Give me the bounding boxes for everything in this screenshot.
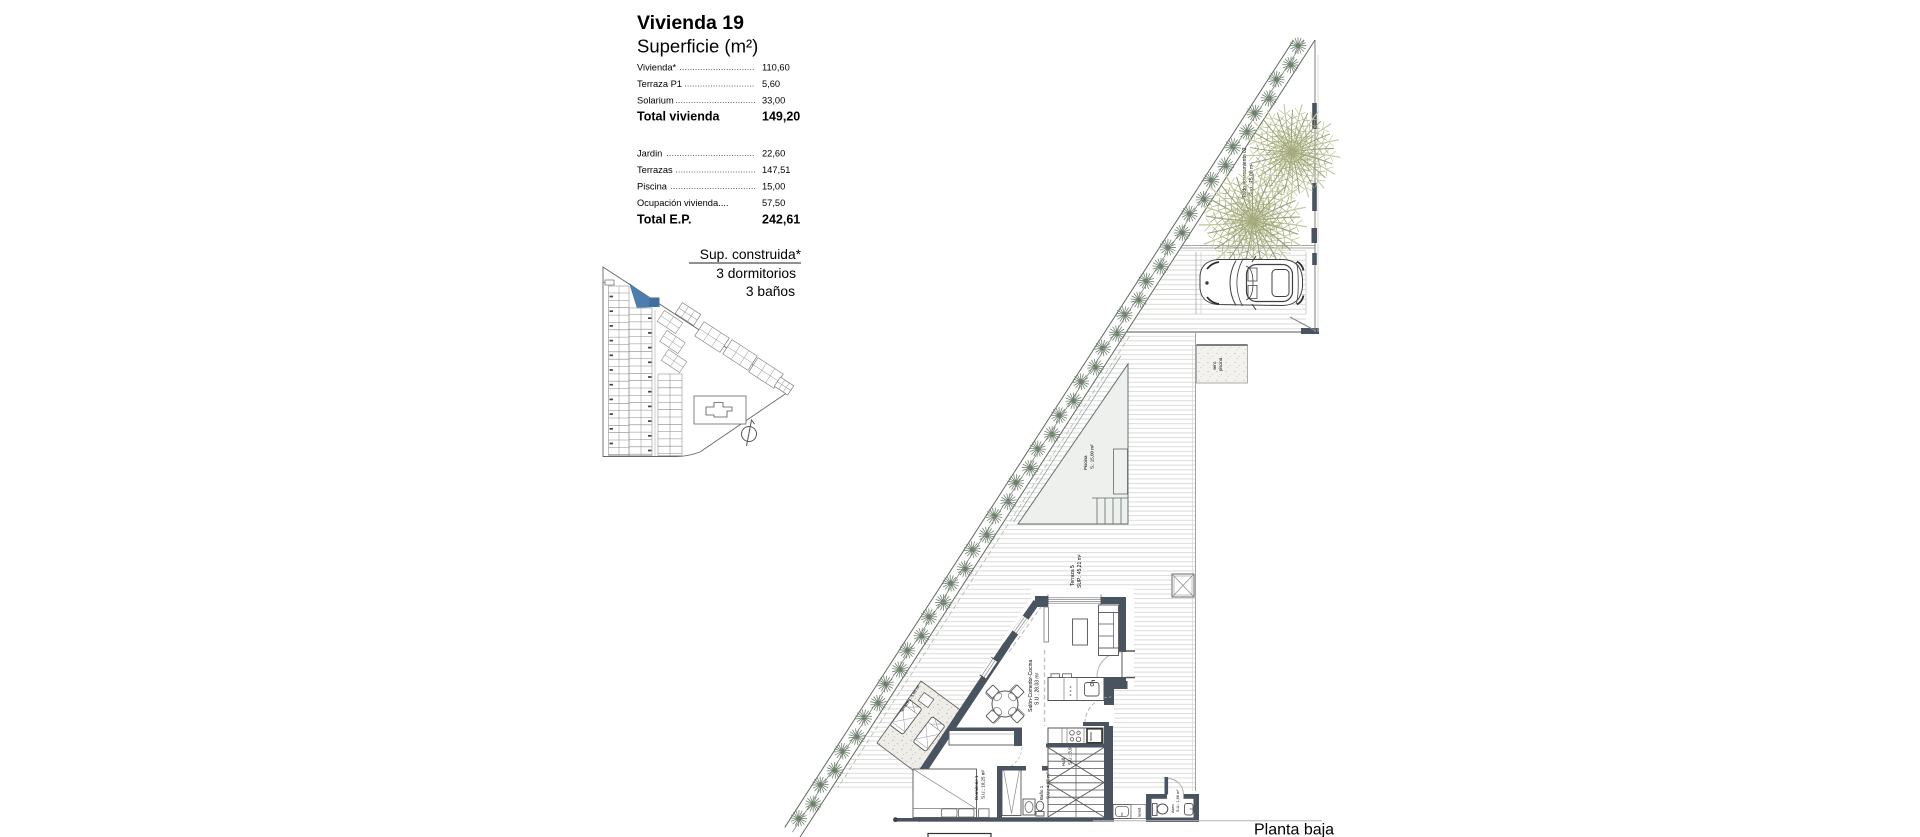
svg-text:Vivienda 19: Vivienda 19 <box>637 12 744 34</box>
svg-text:piscina: piscina <box>1218 357 1223 371</box>
svg-text:Terraza 5: Terraza 5 <box>1070 565 1076 586</box>
svg-text:S.: 15,00 m²: S.: 15,00 m² <box>1090 444 1095 469</box>
svg-text:5,60: 5,60 <box>762 79 780 89</box>
svg-text:Dormitorio 1: Dormitorio 1 <box>974 775 979 800</box>
svg-text:SUP.: 45,21 m²: SUP.: 45,21 m² <box>1077 554 1083 588</box>
svg-text:S.U.: 1,96 m²: S.U.: 1,96 m² <box>1176 789 1180 812</box>
svg-text:3 baños: 3 baños <box>746 284 795 299</box>
svg-text:Ocupación vivienda....: Ocupación vivienda.... <box>637 198 728 208</box>
svg-text:149,20: 149,20 <box>762 110 800 124</box>
svg-text:Planta baja: Planta baja <box>1254 822 1334 837</box>
svg-text:Jardin: Jardin <box>637 149 662 159</box>
svg-text:Total vivienda: Total vivienda <box>637 110 720 124</box>
svg-text:22,60: 22,60 <box>762 149 785 159</box>
svg-text:242,61: 242,61 <box>762 213 800 227</box>
svg-text:Salón-Comedor-Cocina: Salón-Comedor-Cocina <box>1028 660 1034 712</box>
svg-text:Sup. construida*: Sup. construida* <box>700 247 802 262</box>
svg-text:vent.: vent. <box>1212 361 1217 370</box>
svg-text:Superficie (m²): Superficie (m²) <box>637 36 758 57</box>
svg-text:Hall: Hall <box>1061 758 1066 766</box>
svg-text:Terraza P1: Terraza P1 <box>637 79 682 89</box>
svg-text:33,00: 33,00 <box>762 96 785 106</box>
svg-text:Aseo: Aseo <box>1171 804 1175 813</box>
svg-text:lavad.: lavad. <box>1138 807 1142 817</box>
svg-text:S.U.: 28,03 m²: S.U.: 28,03 m² <box>1035 672 1041 705</box>
svg-text:Total E.P.: Total E.P. <box>637 213 691 227</box>
svg-text:57,50: 57,50 <box>762 198 785 208</box>
svg-text:S.U.: 10,25 m²: S.U.: 10,25 m² <box>981 769 986 799</box>
svg-text:Piscina: Piscina <box>1083 455 1088 470</box>
svg-text:147,51: 147,51 <box>762 165 790 175</box>
svg-text:Piscina: Piscina <box>637 182 668 192</box>
svg-text:Terrazas: Terrazas <box>637 165 673 175</box>
svg-text:3 dormitorios: 3 dormitorios <box>716 266 796 281</box>
svg-text:Solarium: Solarium <box>637 96 674 106</box>
svg-text:Baño 1: Baño 1 <box>1039 785 1044 800</box>
svg-text:15,00: 15,00 <box>762 182 785 192</box>
svg-text:110,60: 110,60 <box>762 63 790 73</box>
svg-text:Vivienda*: Vivienda* <box>637 63 676 73</box>
svg-text:horno: horno <box>1089 732 1093 741</box>
